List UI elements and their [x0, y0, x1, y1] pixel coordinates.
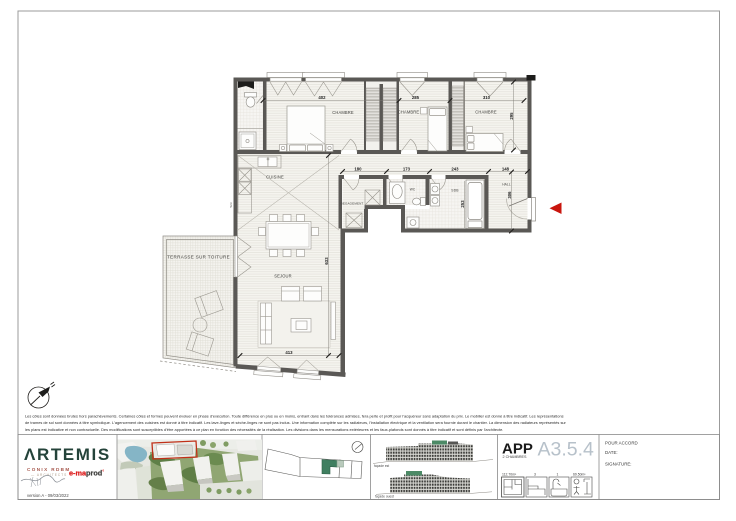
svg-text:— ARCHITECTS: — ARCHITECTS	[31, 473, 67, 477]
svg-text:633: 633	[324, 257, 329, 265]
svg-text:CHAMBRE: CHAMBRE	[475, 110, 497, 115]
svg-text:2 CHAMBRES: 2 CHAMBRES	[503, 455, 528, 459]
svg-text:310: 310	[483, 95, 491, 100]
svg-text:HALL: HALL	[502, 183, 511, 187]
svg-text:POUR ACCORD: POUR ACCORD	[605, 441, 638, 446]
svg-text:A3.5.4: A3.5.4	[538, 439, 595, 461]
svg-text:DEGAGEMENT: DEGAGEMENT	[341, 202, 364, 206]
svg-text:173: 173	[403, 166, 411, 171]
svg-text:Les côtes sont données brutes: Les côtes sont données brutes hors parac…	[25, 414, 564, 419]
svg-text:SEJOUR: SEJOUR	[274, 274, 292, 279]
svg-text:253: 253	[460, 200, 465, 208]
svg-text:ΛRTEMIS: ΛRTEMIS	[24, 445, 111, 464]
svg-text:3: 3	[534, 473, 536, 477]
svg-text:243: 243	[451, 166, 459, 171]
svg-text:CHAMBRE: CHAMBRE	[398, 110, 420, 115]
svg-text:69.50m²: 69.50m²	[573, 473, 586, 477]
svg-text:façade est: façade est	[374, 464, 389, 468]
svg-text:les plans est indicative et no: les plans est indicative et non contract…	[25, 427, 503, 432]
svg-text:CUISINE: CUISINE	[266, 175, 284, 180]
svg-text:e-maprod°: e-maprod°	[69, 469, 104, 478]
svg-text:295: 295	[509, 112, 514, 120]
svg-text:SIGNATURE:: SIGNATURE:	[605, 462, 632, 467]
svg-text:402: 402	[318, 95, 326, 100]
svg-text:TERRASSE SUR TOITURE: TERRASSE SUR TOITURE	[167, 255, 230, 260]
svg-text:façade ouest: façade ouest	[375, 495, 394, 499]
svg-text:413: 413	[285, 350, 293, 355]
svg-text:version A - 09/03/2022: version A - 09/03/2022	[27, 493, 69, 498]
svg-text:1: 1	[557, 473, 559, 477]
svg-text:285: 285	[412, 95, 420, 100]
svg-text:523: 523	[229, 202, 233, 207]
svg-text:CONIX RDBM: CONIX RDBM	[27, 467, 71, 472]
svg-text:180: 180	[354, 166, 362, 171]
svg-text:306: 306	[507, 191, 512, 199]
svg-text:DATE:: DATE:	[605, 450, 618, 455]
svg-text:148: 148	[502, 166, 510, 171]
svg-text:de trames de sol sont données: de trames de sol sont données à titre sy…	[25, 420, 567, 425]
svg-text:WC: WC	[410, 188, 416, 192]
svg-text:112.70m²: 112.70m²	[502, 473, 517, 477]
svg-text:SDB: SDB	[451, 189, 459, 193]
svg-text:CHAMBRE: CHAMBRE	[332, 110, 354, 115]
